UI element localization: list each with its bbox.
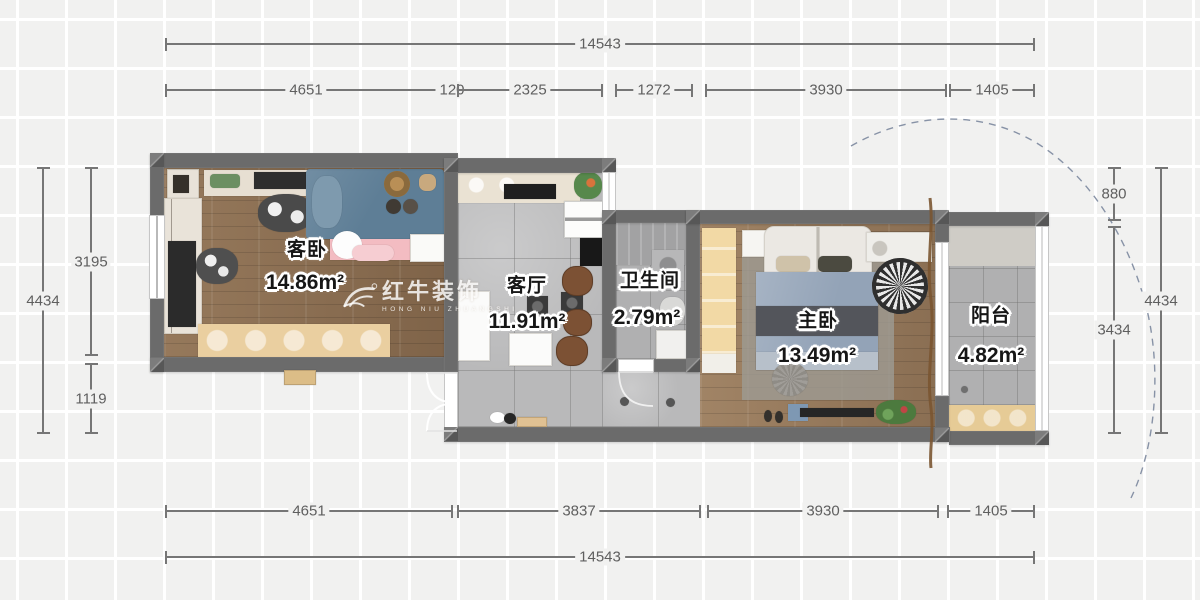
wall-corner: [1035, 431, 1049, 445]
floor-kettle-dark: [504, 413, 516, 424]
floor-tray: [517, 417, 547, 427]
room-area-guest-bedroom: 14.86m²: [266, 271, 344, 295]
kitchen-sink: [564, 201, 604, 238]
bed-throw: [312, 176, 342, 228]
guest-low-cabinet: [198, 324, 390, 357]
hall-cabinet-knob-1: [620, 397, 629, 406]
room-area-living-room: 11.91m²: [488, 310, 565, 334]
wall-bathroom-right: [686, 210, 700, 372]
master-plant: [876, 400, 916, 424]
dim-top-seg-1405: 1405: [950, 89, 1034, 91]
dim-left-upper-3195: 3195: [90, 168, 92, 355]
wall-corner: [935, 428, 949, 442]
dim-right-lower-3434: 3434: [1113, 227, 1115, 433]
entry-step: [284, 370, 316, 385]
room-label-bathroom: 卫生间: [620, 266, 680, 293]
balcony-floor: [949, 266, 1035, 405]
watermark-brand-text: 红牛装饰: [382, 281, 518, 303]
wall-corner: [686, 358, 700, 372]
wall-balcony-bottom: [949, 431, 1049, 445]
wall-balcony-top: [949, 212, 1049, 226]
floorplan-canvas: 红牛装饰 HONG NIU ZHUANGSHI 客卧 14.86m² 客厅 11…: [0, 0, 1200, 600]
balcony-cabinet: [949, 405, 1035, 431]
room-label-balcony: 阳台: [971, 301, 1011, 328]
bull-logo-icon: [342, 281, 378, 311]
master-wardrobe: [702, 228, 736, 354]
dim-bottom-seg-3930: 3930: [708, 510, 938, 512]
entry-door-threshold: [444, 372, 458, 428]
slipper-2: [775, 411, 783, 423]
guest-chair-2: [196, 248, 238, 284]
slipper-1: [764, 410, 772, 422]
dim-bottom-seg-1405: 1405: [948, 510, 1034, 512]
wall-corner: [1035, 212, 1049, 226]
tv-bench: [800, 408, 874, 417]
bath-sink: [656, 330, 687, 359]
dim-top-seg-4651: 4651: [166, 89, 446, 91]
wall-guest-living-divider: [444, 158, 458, 372]
desk-plant: [210, 174, 240, 188]
room-label-guest-bedroom: 客卧: [287, 235, 327, 262]
pink-blanket-fold: [352, 245, 394, 261]
floor-dish-white: [490, 412, 505, 423]
room-area-bathroom: 2.79m²: [614, 306, 681, 330]
dim-right-upper-880: 880: [1113, 168, 1115, 220]
bed-table: [384, 171, 410, 197]
dining-chair-top: [562, 266, 593, 296]
wall-corner: [602, 358, 616, 372]
room-label-master-bedroom: 主卧: [798, 306, 838, 333]
dim-top-seg-2325: 2325: [458, 89, 602, 91]
master-wardrobe-lower: [702, 354, 736, 373]
balcony-upper-strip: [949, 226, 1035, 266]
brand-watermark: 红牛装饰 HONG NIU ZHUANGSHI: [342, 281, 518, 313]
dim-top-seg-1272: 1272: [616, 89, 692, 91]
wall-corner: [150, 358, 164, 372]
dining-table: [509, 333, 552, 366]
dining-chair-mid: [563, 309, 592, 336]
room-area-balcony: 4.82m²: [958, 344, 1025, 368]
room-label-living-room: 客厅: [507, 271, 547, 298]
dim-bottom-seg-3837: 3837: [458, 510, 700, 512]
wall-picture: [173, 175, 189, 193]
master-pillow-dark: [818, 256, 852, 272]
wall-corner: [444, 158, 458, 172]
dim-top-seg-3930: 3930: [706, 89, 946, 91]
bed-pillow-dark-2: [403, 199, 418, 214]
room-area-master-bedroom: 13.49m²: [778, 344, 856, 368]
wall-corner: [602, 210, 616, 224]
window-living-right: [602, 172, 616, 212]
wall-corner: [150, 153, 164, 167]
master-pillow-light: [776, 256, 810, 272]
window-balcony-right: [1035, 226, 1049, 431]
wall-bottom-main: [444, 427, 950, 442]
dim-right-outer-4434: 4434: [1160, 168, 1162, 433]
wall-top-guest: [150, 153, 458, 168]
wall-master-top: [686, 210, 949, 224]
wall-corner: [935, 210, 949, 224]
bed-pillow-dark-1: [386, 199, 401, 214]
window-master-balcony: [935, 242, 949, 396]
balcony-drain: [961, 386, 968, 393]
dim-left-lower-1119: 1119: [90, 364, 92, 433]
dim-bottom-total: 14543: [166, 556, 1034, 558]
bathroom-door-gap: [618, 359, 654, 372]
cooktop: [504, 184, 556, 199]
wall-top-living: [444, 158, 616, 173]
dim-bottom-seg-4651: 4651: [166, 510, 452, 512]
wall-corner: [602, 158, 616, 172]
wall-living-right: [602, 212, 616, 372]
hall-cabinet-knob-2: [666, 398, 675, 407]
hallway-floor: [602, 372, 700, 427]
kitchen-plant: [574, 172, 602, 199]
guest-piano: [168, 241, 196, 327]
window-left: [149, 215, 165, 299]
wall-corner: [444, 427, 458, 441]
master-round-rug: [872, 258, 928, 314]
dim-left-outer-4434: 4434: [42, 168, 44, 433]
guest-nightstand: [410, 234, 446, 262]
bed-teddy: [419, 174, 436, 191]
dim-top-total: 14543: [166, 43, 1034, 45]
wall-corner: [686, 210, 700, 224]
dining-chair-bottom: [556, 336, 588, 366]
